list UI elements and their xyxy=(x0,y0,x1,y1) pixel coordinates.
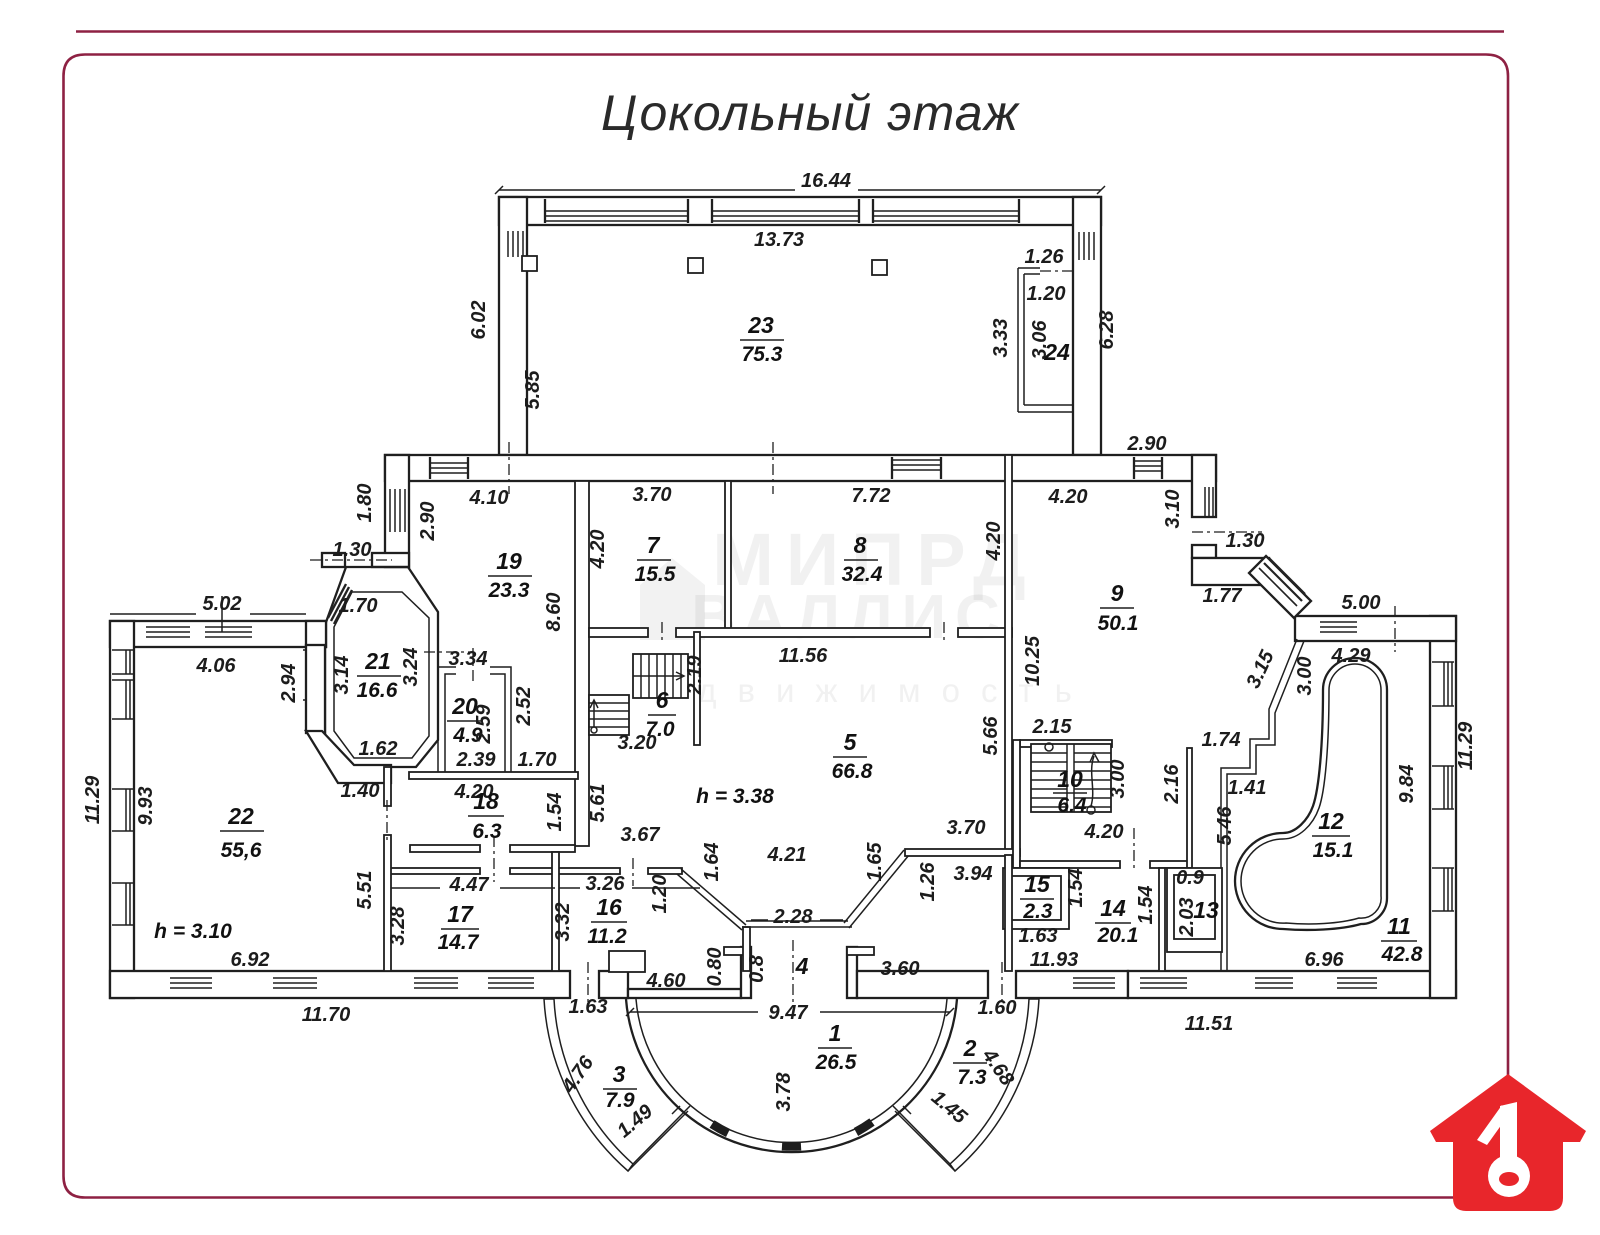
svg-text:3.78: 3.78 xyxy=(773,1072,795,1112)
svg-text:11.51: 11.51 xyxy=(1185,1013,1234,1035)
svg-text:17: 17 xyxy=(447,901,474,927)
svg-text:4.10: 4.10 xyxy=(469,487,509,509)
svg-text:5.66: 5.66 xyxy=(980,716,1002,756)
svg-text:2: 2 xyxy=(963,1035,977,1061)
svg-text:3.70: 3.70 xyxy=(633,484,672,506)
svg-text:3.70: 3.70 xyxy=(947,817,986,839)
svg-text:1.64: 1.64 xyxy=(701,843,723,882)
svg-text:8.60: 8.60 xyxy=(543,593,565,632)
svg-text:9.84: 9.84 xyxy=(1396,765,1418,804)
svg-text:Цокольный этаж: Цокольный этаж xyxy=(601,85,1021,141)
svg-text:5.61: 5.61 xyxy=(587,784,609,823)
svg-text:9.47: 9.47 xyxy=(769,1002,809,1024)
svg-text:1.40: 1.40 xyxy=(341,780,380,802)
svg-text:4.20: 4.20 xyxy=(1084,821,1124,843)
svg-text:5.46: 5.46 xyxy=(1214,806,1236,846)
svg-text:1.41: 1.41 xyxy=(1228,777,1267,799)
svg-text:11.2: 11.2 xyxy=(587,925,627,948)
svg-text:1.70: 1.70 xyxy=(518,749,557,771)
svg-text:4.20: 4.20 xyxy=(587,530,609,570)
svg-text:1.26: 1.26 xyxy=(1025,246,1065,268)
svg-text:2.28: 2.28 xyxy=(773,906,814,928)
svg-text:16: 16 xyxy=(596,894,622,920)
svg-text:2.90: 2.90 xyxy=(1127,433,1167,455)
svg-text:18: 18 xyxy=(473,788,499,814)
svg-text:1.80: 1.80 xyxy=(354,484,376,523)
svg-text:1: 1 xyxy=(829,1020,842,1046)
svg-text:3.24: 3.24 xyxy=(400,648,422,687)
svg-text:5: 5 xyxy=(844,729,858,755)
svg-text:2.90: 2.90 xyxy=(417,502,439,542)
svg-text:2.52: 2.52 xyxy=(513,687,535,727)
svg-text:42.8: 42.8 xyxy=(1381,943,1423,966)
svg-text:3.14: 3.14 xyxy=(331,656,353,695)
svg-text:1.54: 1.54 xyxy=(1065,869,1087,908)
svg-text:4.21: 4.21 xyxy=(767,844,807,866)
svg-text:66.8: 66.8 xyxy=(832,760,873,783)
svg-text:32.4: 32.4 xyxy=(842,563,883,586)
svg-text:23.3: 23.3 xyxy=(488,579,530,602)
svg-text:15.5: 15.5 xyxy=(635,563,676,586)
svg-text:14.7: 14.7 xyxy=(438,931,480,954)
svg-text:6.28: 6.28 xyxy=(1096,310,1118,350)
svg-text:55,6: 55,6 xyxy=(221,839,262,862)
svg-text:5.00: 5.00 xyxy=(1342,592,1381,614)
svg-text:15: 15 xyxy=(1024,871,1051,897)
svg-text:22: 22 xyxy=(227,803,254,829)
svg-text:11: 11 xyxy=(1387,913,1411,939)
svg-text:3.33: 3.33 xyxy=(990,319,1012,358)
svg-text:6.96: 6.96 xyxy=(1305,949,1345,971)
svg-text:1.63: 1.63 xyxy=(1019,925,1058,947)
svg-text:2.3: 2.3 xyxy=(1022,900,1053,923)
svg-text:7.72: 7.72 xyxy=(852,485,891,507)
svg-text:23: 23 xyxy=(747,312,774,338)
svg-text:5.02: 5.02 xyxy=(203,593,242,615)
svg-text:0.80: 0.80 xyxy=(704,948,726,987)
svg-text:4.47: 4.47 xyxy=(449,874,490,896)
svg-text:6.92: 6.92 xyxy=(231,949,270,971)
svg-text:h = 3.10: h = 3.10 xyxy=(154,920,232,943)
svg-text:7: 7 xyxy=(647,532,661,558)
svg-text:3: 3 xyxy=(613,1061,626,1087)
svg-text:1.26: 1.26 xyxy=(917,862,939,902)
svg-text:11.29: 11.29 xyxy=(1455,721,1477,770)
svg-text:6.3: 6.3 xyxy=(472,820,502,843)
svg-text:1.30: 1.30 xyxy=(1226,530,1265,552)
svg-text:3.34: 3.34 xyxy=(449,648,488,670)
svg-text:1.70: 1.70 xyxy=(339,595,378,617)
svg-text:5.85: 5.85 xyxy=(522,370,544,410)
svg-text:3.20: 3.20 xyxy=(618,732,657,754)
svg-text:4.60: 4.60 xyxy=(646,970,686,992)
svg-text:1.60: 1.60 xyxy=(978,997,1017,1019)
svg-text:3.94: 3.94 xyxy=(954,863,993,885)
svg-text:20.1: 20.1 xyxy=(1097,924,1139,947)
svg-text:50.1: 50.1 xyxy=(1098,612,1139,635)
svg-text:11.29: 11.29 xyxy=(82,775,104,824)
svg-text:11.56: 11.56 xyxy=(779,645,828,667)
svg-text:8: 8 xyxy=(854,532,867,558)
svg-text:1.54: 1.54 xyxy=(544,793,566,832)
svg-text:2.39: 2.39 xyxy=(456,749,497,771)
svg-text:9: 9 xyxy=(1111,580,1124,606)
svg-text:1.20: 1.20 xyxy=(649,875,671,914)
svg-text:3.26: 3.26 xyxy=(586,873,626,895)
svg-text:7.9: 7.9 xyxy=(605,1089,635,1112)
svg-text:3.10: 3.10 xyxy=(1162,490,1184,529)
svg-text:4.20: 4.20 xyxy=(1048,486,1088,508)
svg-text:3.00: 3.00 xyxy=(1107,760,1129,799)
svg-text:1.20: 1.20 xyxy=(1027,283,1066,305)
svg-text:9.93: 9.93 xyxy=(135,787,157,826)
svg-text:2.19: 2.19 xyxy=(684,655,706,696)
svg-text:2.16: 2.16 xyxy=(1161,764,1183,805)
svg-text:10.25: 10.25 xyxy=(1022,635,1044,686)
svg-text:5.51: 5.51 xyxy=(354,871,376,910)
svg-text:16.6: 16.6 xyxy=(357,679,398,702)
svg-text:13.73: 13.73 xyxy=(754,229,804,251)
svg-text:1.54: 1.54 xyxy=(1135,886,1157,925)
svg-text:4.06: 4.06 xyxy=(196,655,237,677)
svg-text:11.93: 11.93 xyxy=(1030,949,1079,971)
svg-text:3.32: 3.32 xyxy=(552,903,574,942)
svg-text:4.29: 4.29 xyxy=(1331,645,1372,667)
svg-text:1.63: 1.63 xyxy=(569,996,608,1018)
svg-text:2.59: 2.59 xyxy=(473,704,495,745)
svg-text:1.65: 1.65 xyxy=(864,842,886,882)
svg-text:1.77: 1.77 xyxy=(1203,585,1243,607)
svg-text:26.5: 26.5 xyxy=(815,1051,857,1074)
svg-text:15.1: 15.1 xyxy=(1313,839,1354,862)
svg-text:3.60: 3.60 xyxy=(881,958,920,980)
svg-text:21: 21 xyxy=(364,648,391,674)
svg-text:2.94: 2.94 xyxy=(278,664,300,704)
svg-text:1.62: 1.62 xyxy=(359,738,398,760)
svg-text:19: 19 xyxy=(496,548,522,574)
svg-text:4.20: 4.20 xyxy=(983,522,1005,562)
svg-text:10: 10 xyxy=(1057,766,1083,792)
svg-text:16.44: 16.44 xyxy=(801,170,851,192)
svg-text:ВАЛЛИС: ВАЛЛИС xyxy=(691,583,1009,652)
svg-text:1.30: 1.30 xyxy=(333,539,372,561)
svg-text:75.3: 75.3 xyxy=(742,343,783,366)
svg-text:2.03: 2.03 xyxy=(1176,898,1198,938)
svg-text:6.4: 6.4 xyxy=(1057,794,1087,817)
svg-text:0.8: 0.8 xyxy=(746,954,768,983)
svg-text:7.3: 7.3 xyxy=(957,1066,987,1089)
svg-text:3.28: 3.28 xyxy=(387,906,409,946)
svg-text:1.74: 1.74 xyxy=(1202,729,1241,751)
svg-text:0.9: 0.9 xyxy=(1176,867,1205,889)
svg-text:4: 4 xyxy=(795,953,809,979)
svg-text:6.02: 6.02 xyxy=(468,301,490,340)
svg-text:2.15: 2.15 xyxy=(1032,716,1073,738)
svg-text:3.67: 3.67 xyxy=(621,824,661,846)
svg-text:12: 12 xyxy=(1318,808,1344,834)
svg-text:h = 3.38: h = 3.38 xyxy=(696,785,774,808)
svg-text:14: 14 xyxy=(1100,895,1126,921)
svg-text:11.70: 11.70 xyxy=(302,1004,351,1026)
svg-text:3.06: 3.06 xyxy=(1029,320,1051,360)
svg-text:6: 6 xyxy=(656,687,669,713)
svg-text:3.00: 3.00 xyxy=(1294,657,1316,696)
